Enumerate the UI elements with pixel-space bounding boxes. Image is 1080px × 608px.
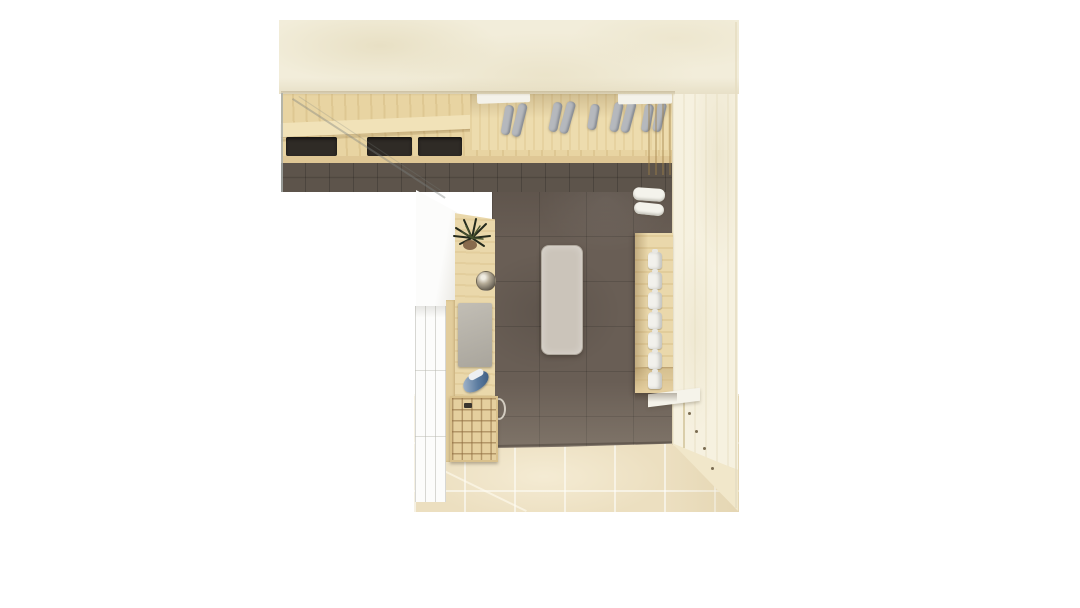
- tiled-backsplash: [281, 163, 675, 192]
- screw-dot: [688, 412, 691, 415]
- screw-dot: [695, 430, 698, 433]
- shelf-bottle: [648, 272, 662, 289]
- top-wall: [279, 20, 739, 94]
- screw-dot: [711, 467, 714, 470]
- shelf-bottle: [648, 352, 662, 369]
- shelf-bottle: [648, 312, 662, 329]
- glass-partition-edge: [281, 93, 283, 192]
- corner-wood-slats: [648, 103, 674, 175]
- wall-outer-edge: [735, 22, 737, 508]
- wall-base-edge: [683, 395, 685, 448]
- appliance-slot: [286, 137, 337, 156]
- right-wall-cabinet: [635, 233, 673, 393]
- wall-shadow: [281, 91, 675, 96]
- screw-dot: [703, 447, 706, 450]
- shelf-bottle: [648, 252, 662, 269]
- cabinet-shadow: [635, 393, 677, 402]
- cubby-label: [464, 403, 472, 408]
- floor-rug: [541, 245, 583, 355]
- metal-bowl: [476, 271, 496, 291]
- potted-plant: [450, 214, 494, 258]
- room-render-canvas: [0, 0, 1080, 608]
- hanging-garment: [587, 103, 600, 130]
- wardrobe-doors: [415, 306, 446, 502]
- shelf-bottle: [648, 332, 662, 349]
- folded-towel: [633, 187, 666, 202]
- shelf-bottle: [648, 372, 662, 389]
- clothes-iron: [458, 364, 496, 400]
- shelf-bottle: [648, 292, 662, 309]
- cubby-shelf: [450, 396, 498, 462]
- appliance-slot: [418, 137, 462, 156]
- grey-board: [458, 303, 492, 367]
